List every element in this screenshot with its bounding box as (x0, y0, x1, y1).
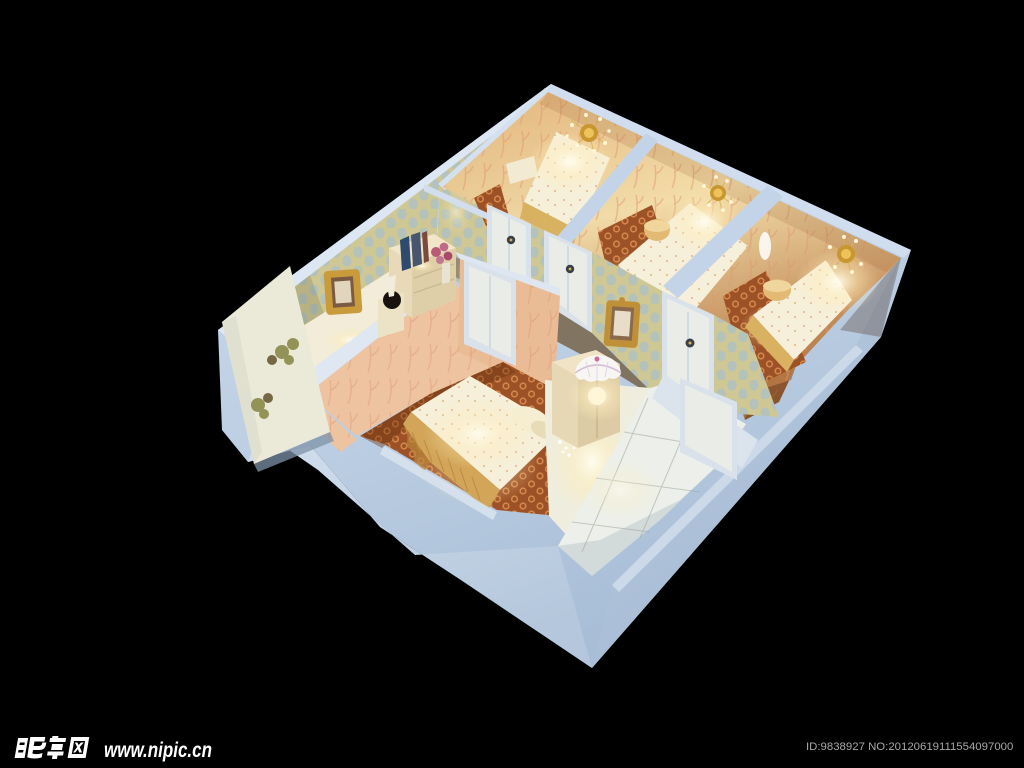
svg-text:ID:9838927 NO:2012061911155409: ID:9838927 NO:20120619111554097000 (806, 741, 1013, 753)
svg-text:www.nipic.cn: www.nipic.cn (104, 739, 212, 762)
